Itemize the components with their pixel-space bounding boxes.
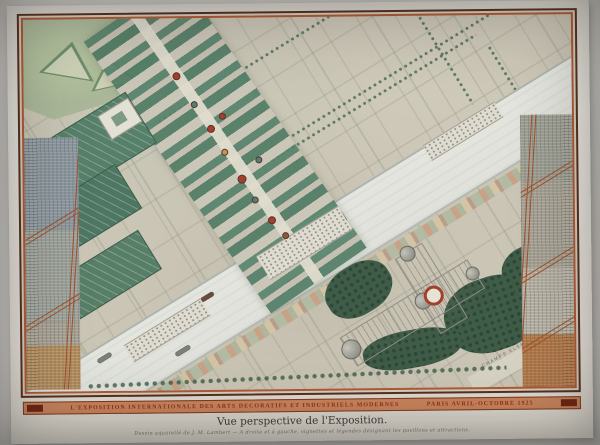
pavilion-dome xyxy=(192,102,197,107)
pavilion-dome xyxy=(283,233,288,238)
inset-panel xyxy=(26,345,80,390)
pavilion-dome xyxy=(253,197,258,202)
right-inset-vignettes xyxy=(520,114,577,387)
left-inset-vignettes xyxy=(24,137,81,390)
pavilion-dome xyxy=(173,73,179,79)
pavilion-dome xyxy=(222,150,227,155)
banner-title: L'EXPOSITION INTERNATIONALE DES ARTS DEC… xyxy=(70,401,399,410)
pavilion-dome xyxy=(239,176,246,183)
banner-end-block xyxy=(561,399,577,406)
print-caption: Vue perspective de l'Exposition. Dessin … xyxy=(11,412,593,438)
round-fountain xyxy=(424,285,444,305)
photograph-of-print: CHAMPS ELYSEES xyxy=(0,0,600,445)
map-frame-border: CHAMPS ELYSEES xyxy=(17,8,581,398)
pavilion-dome xyxy=(220,114,225,119)
banner-end-block xyxy=(27,405,43,412)
pavilion-dome xyxy=(208,126,214,132)
perspective-map: CHAMPS ELYSEES xyxy=(21,12,577,394)
boat xyxy=(93,393,105,394)
courtyard-garden xyxy=(111,111,128,127)
pavilion-dome xyxy=(256,157,261,162)
boat xyxy=(175,345,191,357)
boat xyxy=(97,352,112,363)
boat xyxy=(200,292,214,303)
poster-print-sheet: CHAMPS ELYSEES xyxy=(7,0,594,444)
pavilion-dome xyxy=(269,217,275,223)
banner-dates: PARIS AVRIL-OCTOBRE 1925 xyxy=(427,400,534,407)
